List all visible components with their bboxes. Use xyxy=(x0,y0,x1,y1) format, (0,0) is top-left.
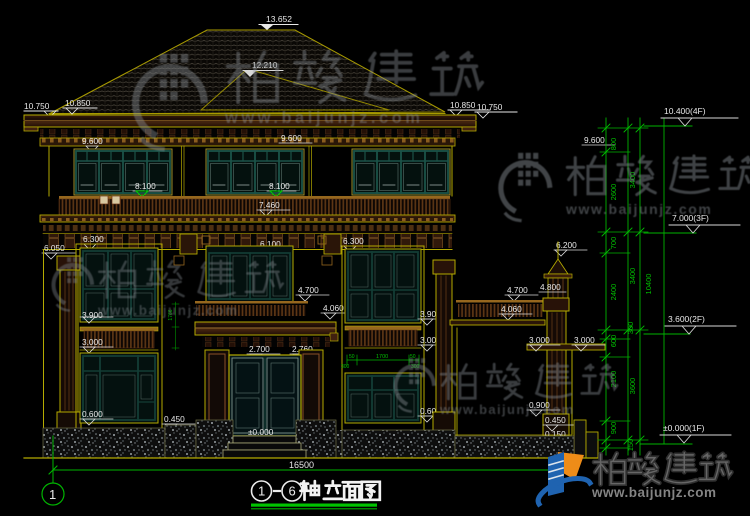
svg-text:www.baijunjz.com: www.baijunjz.com xyxy=(224,109,423,127)
svg-text:300: 300 xyxy=(626,322,635,335)
svg-text:13.652: 13.652 xyxy=(266,14,292,24)
svg-text:www.baijunjz.com: www.baijunjz.com xyxy=(439,402,575,417)
svg-text:10.850: 10.850 xyxy=(450,100,476,110)
svg-text:800: 800 xyxy=(609,138,618,151)
svg-text:4.800: 4.800 xyxy=(540,282,561,292)
svg-text:6.200: 6.200 xyxy=(556,240,577,250)
svg-text:1: 1 xyxy=(49,487,56,502)
svg-text:4.700: 4.700 xyxy=(507,285,528,295)
svg-text:10.750: 10.750 xyxy=(24,101,50,111)
svg-text:8.100: 8.100 xyxy=(269,181,290,191)
svg-text:6.300: 6.300 xyxy=(343,236,364,246)
svg-text:10.850: 10.850 xyxy=(65,98,91,108)
svg-text:50: 50 xyxy=(349,354,355,360)
svg-text:10.750: 10.750 xyxy=(477,102,503,112)
svg-text:3.000: 3.000 xyxy=(529,335,550,345)
svg-text:www.baijunjz.com: www.baijunjz.com xyxy=(97,303,239,318)
svg-text:2400: 2400 xyxy=(609,284,618,301)
svg-text:10.400(4F): 10.400(4F) xyxy=(664,106,706,116)
svg-text:9.600: 9.600 xyxy=(281,133,302,143)
svg-text:300: 300 xyxy=(341,364,350,370)
svg-text:9.600: 9.600 xyxy=(584,135,605,145)
svg-text:10400: 10400 xyxy=(644,274,653,295)
svg-text:±0.000(1F): ±0.000(1F) xyxy=(663,423,705,433)
svg-text:0.450: 0.450 xyxy=(164,414,185,424)
svg-text:7.460: 7.460 xyxy=(259,200,280,210)
svg-text:3.000: 3.000 xyxy=(574,335,595,345)
svg-text:1: 1 xyxy=(258,484,265,499)
svg-text:4.700: 4.700 xyxy=(298,285,319,295)
svg-text:6.300: 6.300 xyxy=(83,234,104,244)
svg-text:4.060: 4.060 xyxy=(323,303,344,313)
svg-text:www.baijunjz.com: www.baijunjz.com xyxy=(565,201,712,217)
svg-text:900: 900 xyxy=(609,422,618,435)
svg-text:4.060: 4.060 xyxy=(501,304,522,314)
svg-text:±0.000: ±0.000 xyxy=(248,427,274,437)
svg-text:2.700: 2.700 xyxy=(249,344,270,354)
svg-text:1700: 1700 xyxy=(376,354,388,360)
svg-text:www.baijunjz.com: www.baijunjz.com xyxy=(591,485,717,500)
svg-text:0.600: 0.600 xyxy=(82,409,103,419)
svg-text:600: 600 xyxy=(609,335,618,348)
svg-text:6: 6 xyxy=(289,484,296,499)
svg-text:700: 700 xyxy=(609,237,618,250)
svg-text:6.050: 6.050 xyxy=(44,243,65,253)
svg-text:3400: 3400 xyxy=(628,268,637,285)
svg-text:3600: 3600 xyxy=(628,378,637,395)
svg-text:8.100: 8.100 xyxy=(135,181,156,191)
svg-text:16500: 16500 xyxy=(289,460,314,470)
svg-text:3.000: 3.000 xyxy=(82,337,103,347)
svg-text:9.600: 9.600 xyxy=(82,136,103,146)
svg-text:150: 150 xyxy=(626,439,635,452)
svg-text:2600: 2600 xyxy=(609,184,618,201)
svg-text:3.600(2F): 3.600(2F) xyxy=(668,314,705,324)
